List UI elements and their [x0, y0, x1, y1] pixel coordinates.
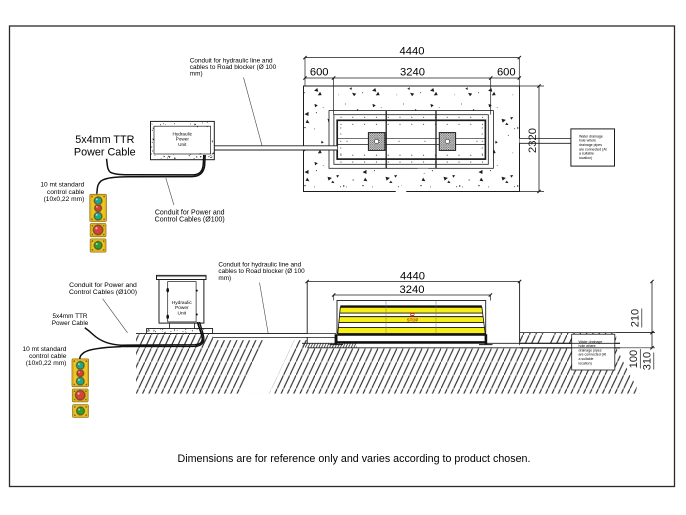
svg-text:Conduit for Power and: Conduit for Power and — [155, 209, 225, 216]
svg-text:600: 600 — [497, 67, 516, 79]
svg-text:Unit: Unit — [178, 142, 187, 147]
svg-text:4440: 4440 — [400, 270, 425, 282]
svg-text:Hydraulic: Hydraulic — [173, 131, 193, 136]
svg-text:3240: 3240 — [400, 67, 425, 79]
svg-text:cables to Road blocker (Ø 100: cables to Road blocker (Ø 100 — [190, 64, 277, 71]
svg-text:Unit: Unit — [178, 311, 187, 317]
svg-text:control cable: control cable — [29, 353, 67, 360]
svg-text:4440: 4440 — [400, 46, 425, 58]
svg-text:3240: 3240 — [400, 284, 425, 296]
svg-text:STOP: STOP — [407, 318, 419, 323]
svg-text:(10x0,22 mm): (10x0,22 mm) — [44, 196, 85, 203]
svg-text:Dimensions are for reference o: Dimensions are for reference only and va… — [178, 453, 531, 465]
svg-text:2320: 2320 — [527, 128, 539, 153]
svg-text:310: 310 — [642, 352, 654, 370]
svg-text:Control Cables (Ø100): Control Cables (Ø100) — [155, 216, 225, 223]
svg-text:location): location) — [579, 361, 592, 365]
svg-text:100: 100 — [628, 350, 640, 368]
svg-text:cables to Road blocker (Ø 100: cables to Road blocker (Ø 100 — [218, 268, 305, 275]
svg-text:Power: Power — [175, 305, 189, 311]
svg-text:mm): mm) — [190, 71, 203, 78]
svg-text:location): location) — [579, 156, 592, 160]
svg-text:5x4mm TTR: 5x4mm TTR — [75, 134, 134, 146]
svg-text:Power Cable: Power Cable — [74, 146, 136, 158]
svg-text:control cable: control cable — [47, 189, 85, 196]
svg-text:600: 600 — [310, 67, 329, 79]
svg-text:mm): mm) — [218, 275, 231, 282]
svg-text:Hydraulic: Hydraulic — [172, 300, 193, 306]
svg-text:10 mt standard: 10 mt standard — [22, 346, 66, 353]
svg-text:Conduit for Power and: Conduit for Power and — [69, 282, 137, 289]
svg-text:5x4mm TTR: 5x4mm TTR — [52, 313, 87, 320]
svg-text:10 mt standard: 10 mt standard — [40, 182, 84, 189]
svg-text:Power: Power — [176, 137, 190, 142]
svg-text:Power Cable: Power Cable — [52, 320, 89, 327]
svg-text:210: 210 — [630, 309, 642, 327]
svg-text:Control Cables (Ø100): Control Cables (Ø100) — [69, 289, 137, 296]
svg-text:(10x0,22 mm): (10x0,22 mm) — [26, 360, 67, 367]
